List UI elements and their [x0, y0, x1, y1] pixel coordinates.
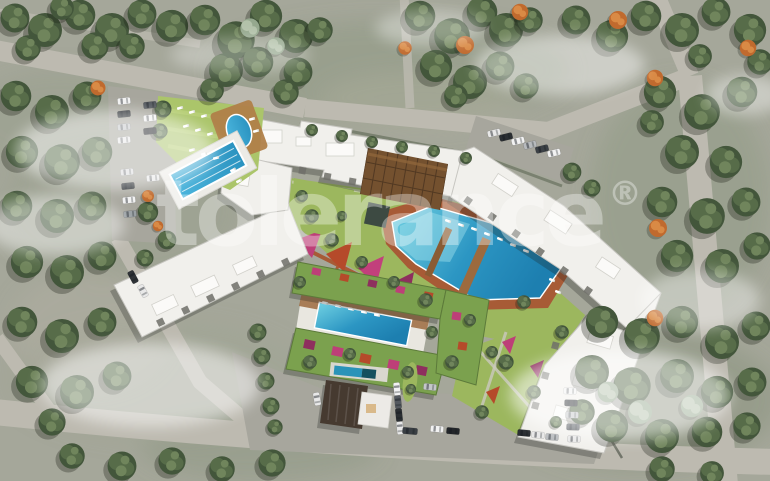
car — [430, 425, 444, 433]
fog-patch — [375, 10, 485, 46]
car — [122, 196, 136, 204]
car — [123, 210, 137, 218]
pool-strip-deep — [361, 368, 376, 378]
car — [117, 97, 131, 105]
fog-patch — [510, 350, 730, 440]
balcony — [323, 173, 331, 181]
fog-patch — [40, 343, 260, 427]
car — [395, 408, 403, 422]
car — [143, 101, 157, 109]
car — [393, 382, 401, 396]
car — [531, 431, 545, 439]
fog-patch — [640, 270, 760, 330]
rooftop-unit — [326, 143, 354, 156]
clubhouse-skylight — [366, 404, 376, 413]
fog-patch — [170, 37, 310, 73]
car — [423, 383, 437, 391]
balcony — [298, 167, 306, 175]
van — [402, 427, 417, 435]
roof-patch — [451, 311, 461, 320]
rooftop-unit — [296, 137, 311, 146]
fog-patch — [475, 35, 645, 95]
car — [394, 395, 402, 409]
fog-patch — [15, 110, 215, 190]
aerial-site-render: tolerance® — [0, 0, 770, 481]
site-plan-svg — [0, 0, 770, 481]
car — [517, 429, 531, 437]
roof-patch — [457, 341, 467, 350]
balcony — [348, 178, 356, 186]
water-feature — [364, 202, 390, 228]
car — [545, 433, 559, 441]
car — [446, 427, 460, 435]
